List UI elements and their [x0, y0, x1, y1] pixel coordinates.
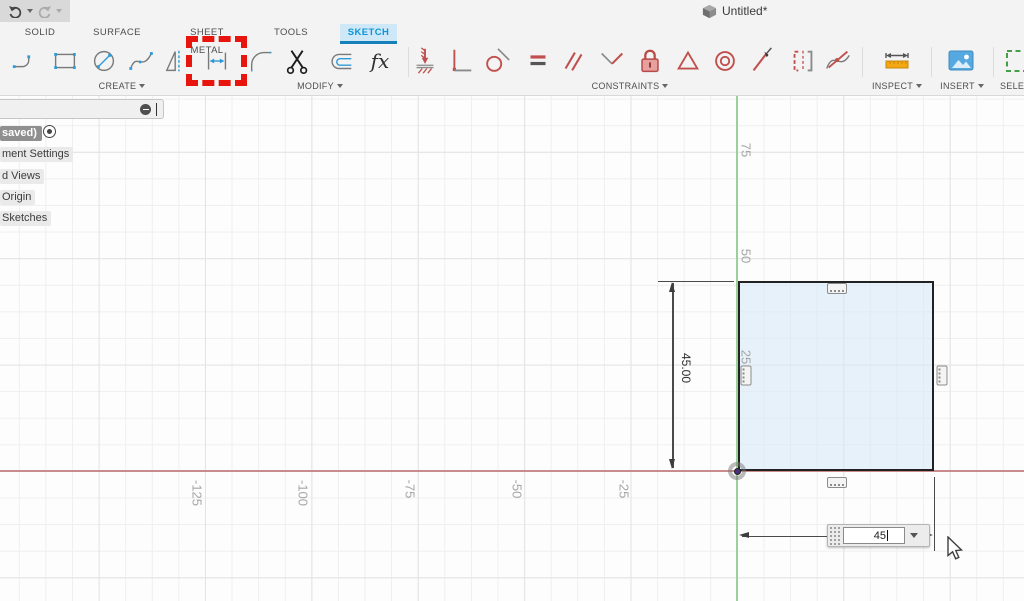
line-tool-icon[interactable]: [8, 44, 42, 78]
arrowhead-down-icon: [669, 459, 675, 469]
insert-menu[interactable]: INSERT: [933, 80, 991, 92]
document-title: Untitled*: [702, 2, 767, 20]
insert-image-icon[interactable]: [944, 44, 978, 78]
fix-lock-icon[interactable]: [633, 44, 667, 78]
dimension-input[interactable]: 45: [843, 527, 905, 544]
dimension-extension-line: [934, 477, 936, 551]
vertical-dimension-line[interactable]: [672, 283, 674, 468]
toolbar: Untitled* SOLID SURFACE SHEET METAL TOOL…: [0, 0, 1024, 96]
horizontal-constraint-icon[interactable]: [827, 477, 847, 488]
redo-caret-icon[interactable]: [56, 9, 62, 13]
chevron-down-icon: [916, 84, 922, 88]
chevron-down-icon: [139, 84, 145, 88]
smooth-icon[interactable]: [745, 44, 779, 78]
function-fx-tool-icon[interactable]: fx: [363, 44, 397, 78]
tangent-icon[interactable]: [480, 44, 514, 78]
undo-caret-icon[interactable]: [27, 9, 33, 13]
chevron-down-icon: [337, 84, 343, 88]
curvature-icon[interactable]: [821, 44, 855, 78]
browser-item-named-views[interactable]: d Views: [0, 169, 44, 184]
browser-item-document-settings[interactable]: ment Settings: [0, 147, 73, 162]
perpendicular-icon[interactable]: [595, 44, 629, 78]
sketch-rectangle[interactable]: [738, 281, 934, 471]
y-axis-tick-label: 50: [739, 249, 754, 263]
x-axis-tick-label: -125: [190, 480, 205, 506]
vertical-constraint-icon[interactable]: [741, 366, 752, 386]
visibility-radio-icon[interactable]: [43, 125, 56, 138]
document-cube-icon: [702, 4, 717, 19]
horizontal-vertical-icon[interactable]: [443, 44, 477, 78]
tab-solid[interactable]: SOLID: [15, 24, 65, 42]
constraints-menu[interactable]: CONSTRAINTS: [588, 80, 672, 92]
tab-surface[interactable]: SURFACE: [90, 24, 144, 42]
x-axis-tick-label: -50: [510, 480, 525, 499]
arrowhead-left-icon: [739, 532, 749, 538]
concentric-icon[interactable]: [708, 44, 742, 78]
dimension-dropdown-button[interactable]: [905, 525, 923, 546]
toolbar-divider: [862, 47, 863, 77]
drag-handle[interactable]: [828, 525, 840, 546]
chevron-down-icon: [662, 84, 668, 88]
trim-tool-icon[interactable]: [281, 44, 315, 78]
undo-icon[interactable]: [8, 5, 23, 18]
vertical-dimension-value[interactable]: 45.00: [679, 353, 693, 383]
midpoint-icon[interactable]: [671, 44, 705, 78]
select-window-icon[interactable]: [1004, 44, 1024, 78]
x-axis-tick-label: -25: [617, 480, 632, 499]
browser-item-origin[interactable]: Origin: [0, 190, 35, 205]
horizontal-dimension-line: [742, 536, 827, 538]
circle-tool-icon[interactable]: [87, 44, 121, 78]
origin-point[interactable]: [728, 462, 746, 480]
modify-menu[interactable]: MODIFY: [290, 80, 350, 92]
y-axis-tick-label: 75: [739, 143, 754, 157]
parallel-icon[interactable]: [557, 44, 591, 78]
equal-icon[interactable]: [521, 44, 555, 78]
coincident-icon[interactable]: [408, 44, 442, 78]
x-axis-tick-label: -100: [296, 480, 311, 506]
rectangle-tool-icon[interactable]: [48, 44, 82, 78]
browser-header-bar[interactable]: [0, 99, 164, 119]
symmetry-icon[interactable]: [786, 44, 820, 78]
browser-item-sketches[interactable]: Sketches: [0, 211, 51, 226]
document-title-text: Untitled*: [722, 4, 767, 18]
text-caret: [156, 103, 157, 116]
arrowhead-up-icon: [669, 282, 675, 292]
x-axis-tick-label: -75: [403, 480, 418, 499]
dimension-input-value: 45: [874, 530, 886, 542]
create-menu[interactable]: CREATE: [92, 80, 152, 92]
browser-root-document[interactable]: saved): [0, 126, 42, 141]
fillet-tool-icon[interactable]: [245, 44, 279, 78]
tab-tools[interactable]: TOOLS: [266, 24, 316, 42]
text-caret: [887, 530, 888, 541]
collapse-minus-icon[interactable]: [140, 104, 151, 115]
highlight-dimension-tool: [186, 36, 247, 86]
mouse-cursor-icon: [946, 536, 965, 568]
spline-tool-icon[interactable]: [125, 44, 159, 78]
tab-sketch[interactable]: SKETCH: [340, 24, 397, 42]
vertical-constraint-icon[interactable]: [937, 366, 948, 386]
undo-redo-group: [0, 0, 70, 22]
horizontal-constraint-icon[interactable]: [827, 283, 847, 294]
inspect-menu[interactable]: INSPECT: [867, 80, 927, 92]
toolbar-divider: [931, 47, 932, 77]
y-axis-tick-label: 25: [739, 350, 754, 364]
chevron-down-icon: [978, 84, 984, 88]
offset-tool-icon[interactable]: [324, 44, 358, 78]
measure-icon[interactable]: [880, 44, 914, 78]
redo-icon[interactable]: [37, 5, 52, 18]
dimension-input-box[interactable]: 45: [827, 524, 930, 547]
select-menu[interactable]: SELECT: [1000, 80, 1024, 92]
toolbar-divider: [993, 47, 994, 77]
